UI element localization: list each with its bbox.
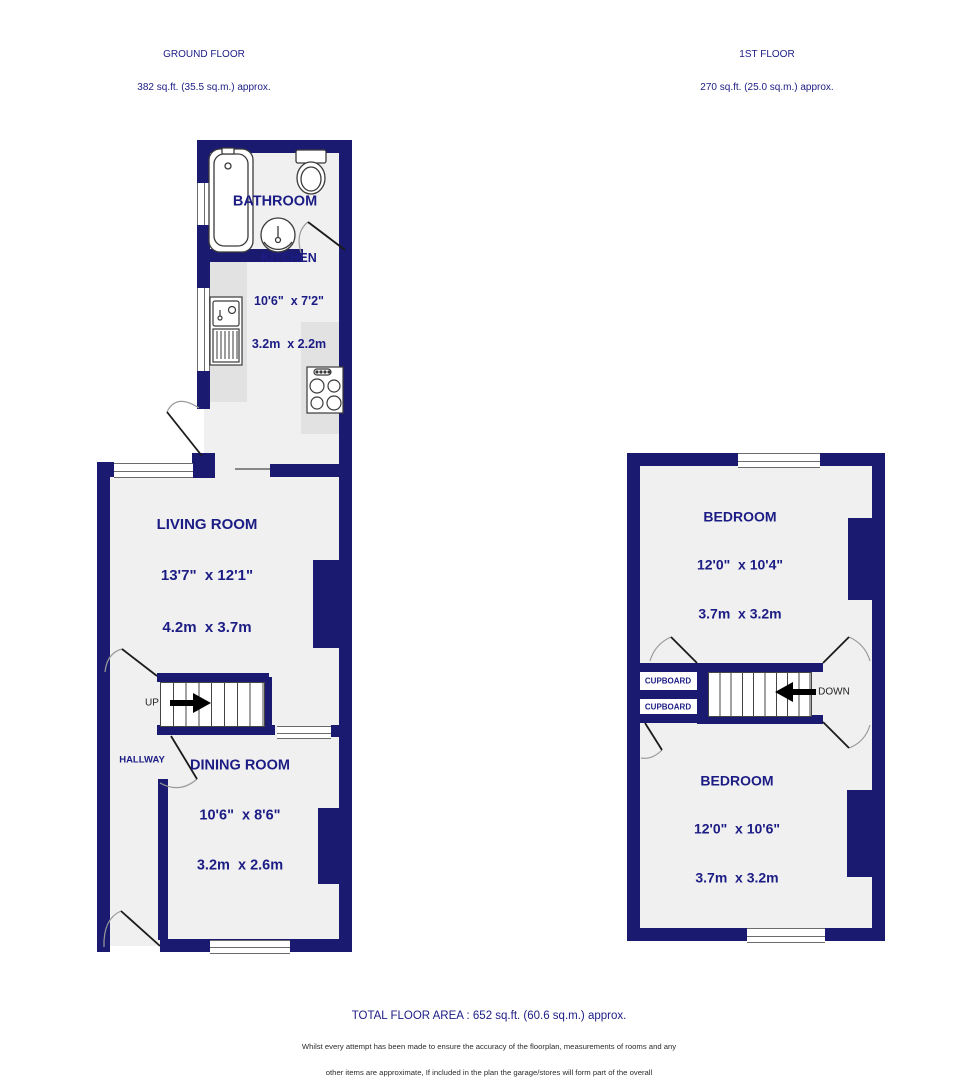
wall-segment <box>825 928 872 941</box>
kitchen-dims-metric: 3.2m x 2.2m <box>252 337 326 351</box>
wall-segment <box>640 928 747 941</box>
disclaimer-line: other items are approximate, If included… <box>302 1069 676 1078</box>
disclaimer-line: Whilst every attempt has been made to en… <box>302 1043 676 1052</box>
ground-floor-title: GROUND FLOOR <box>137 49 270 60</box>
bathroom-label: BATHROOM <box>233 194 317 211</box>
living-room-chimney-breast <box>313 560 339 648</box>
first-floor-title: 1ST FLOOR <box>700 49 833 60</box>
kitchen-side-door <box>167 401 202 456</box>
rear-bedroom-label: BEDROOM 12'0" x 10'4" 3.7m x 3.2m <box>697 476 783 653</box>
wall-segment <box>197 225 210 288</box>
rear-bedroom-window <box>738 453 820 468</box>
wall-segment <box>197 140 352 153</box>
dining-room-dims-imperial: 10'6" x 8'6" <box>190 808 290 825</box>
wall-segment <box>197 140 210 185</box>
rear-bedroom-name: BEDROOM <box>697 509 783 525</box>
stairs-top-rail <box>697 663 823 672</box>
dining-room-name: DINING ROOM <box>190 758 290 775</box>
front-bedroom-dims-imperial: 12'0" x 10'6" <box>694 821 780 837</box>
stairs-end-wall <box>697 663 708 724</box>
kitchen-dims-imperial: 10'6" x 7'2" <box>252 294 326 308</box>
wall-segment <box>270 464 339 477</box>
stairs-down-treads <box>708 672 812 717</box>
rear-bedroom-dims-imperial: 12'0" x 10'4" <box>697 557 783 573</box>
wall-segment <box>339 140 352 952</box>
bathroom-window <box>197 183 210 225</box>
total-floor-area: TOTAL FLOOR AREA : 652 sq.ft. (60.6 sq.m… <box>352 1010 627 1022</box>
ground-floor-area: 382 sq.ft. (35.5 sq.m.) approx. <box>137 82 270 93</box>
front-bedroom-dims-metric: 3.7m x 3.2m <box>694 869 780 885</box>
wall-segment <box>192 453 215 478</box>
dining-room-chimney-breast <box>318 808 340 884</box>
living-room-name: LIVING ROOM <box>157 516 258 533</box>
hallway-label: HALLWAY <box>119 756 165 767</box>
living-room-window <box>114 463 193 478</box>
disclaimer: Whilst every attempt has been made to en… <box>302 1026 676 1080</box>
wall-segment <box>627 453 738 466</box>
wall-segment <box>197 371 210 409</box>
rear-bedroom-dims-metric: 3.7m x 3.2m <box>697 605 783 621</box>
wall-segment <box>331 725 340 737</box>
floorplan-page: GROUND FLOOR 382 sq.ft. (35.5 sq.m.) app… <box>0 0 979 1080</box>
living-room-dims-imperial: 13'7" x 12'1" <box>157 567 258 584</box>
rear-bedroom-chimney-breast <box>848 518 872 600</box>
cupboard-bottom-label: CUPBOARD <box>645 702 691 711</box>
stairs-down-label: DOWN <box>818 687 850 698</box>
hallway-dining-wall <box>158 779 168 940</box>
front-bedroom-name: BEDROOM <box>694 773 780 789</box>
kitchen-counter-left <box>210 262 247 402</box>
first-floor-header: 1ST FLOOR 270 sq.ft. (25.0 sq.m.) approx… <box>700 27 833 115</box>
kitchen-window <box>197 288 210 371</box>
kitchen-label: KITCHEN 10'6" x 7'2" 3.2m x 2.2m <box>252 222 326 380</box>
front-bedroom-chimney-breast <box>847 790 872 877</box>
dining-room-label: DINING ROOM 10'6" x 8'6" 3.2m x 2.6m <box>190 724 290 907</box>
kitchen-name: KITCHEN <box>252 251 326 265</box>
wall-segment <box>97 462 110 952</box>
cupboard-top-label: CUPBOARD <box>645 676 691 685</box>
wall-segment <box>872 453 885 941</box>
living-room-dims-metric: 4.2m x 3.7m <box>157 619 258 636</box>
stairs-top-rail <box>157 673 269 682</box>
dining-room-window <box>210 940 290 954</box>
living-room-label: LIVING ROOM 13'7" x 12'1" 4.2m x 3.7m <box>157 481 258 671</box>
wall-segment <box>627 453 640 941</box>
stairs-up-label: UP <box>145 698 159 709</box>
dining-room-dims-metric: 3.2m x 2.6m <box>190 858 290 875</box>
first-floor-area: 270 sq.ft. (25.0 sq.m.) approx. <box>700 82 833 93</box>
front-bedroom-window <box>747 928 825 943</box>
stairs-up-treads <box>160 682 265 727</box>
front-bedroom-label: BEDROOM 12'0" x 10'6" 3.7m x 3.2m <box>694 740 780 917</box>
ground-floor-header: GROUND FLOOR 382 sq.ft. (35.5 sq.m.) app… <box>137 27 270 115</box>
